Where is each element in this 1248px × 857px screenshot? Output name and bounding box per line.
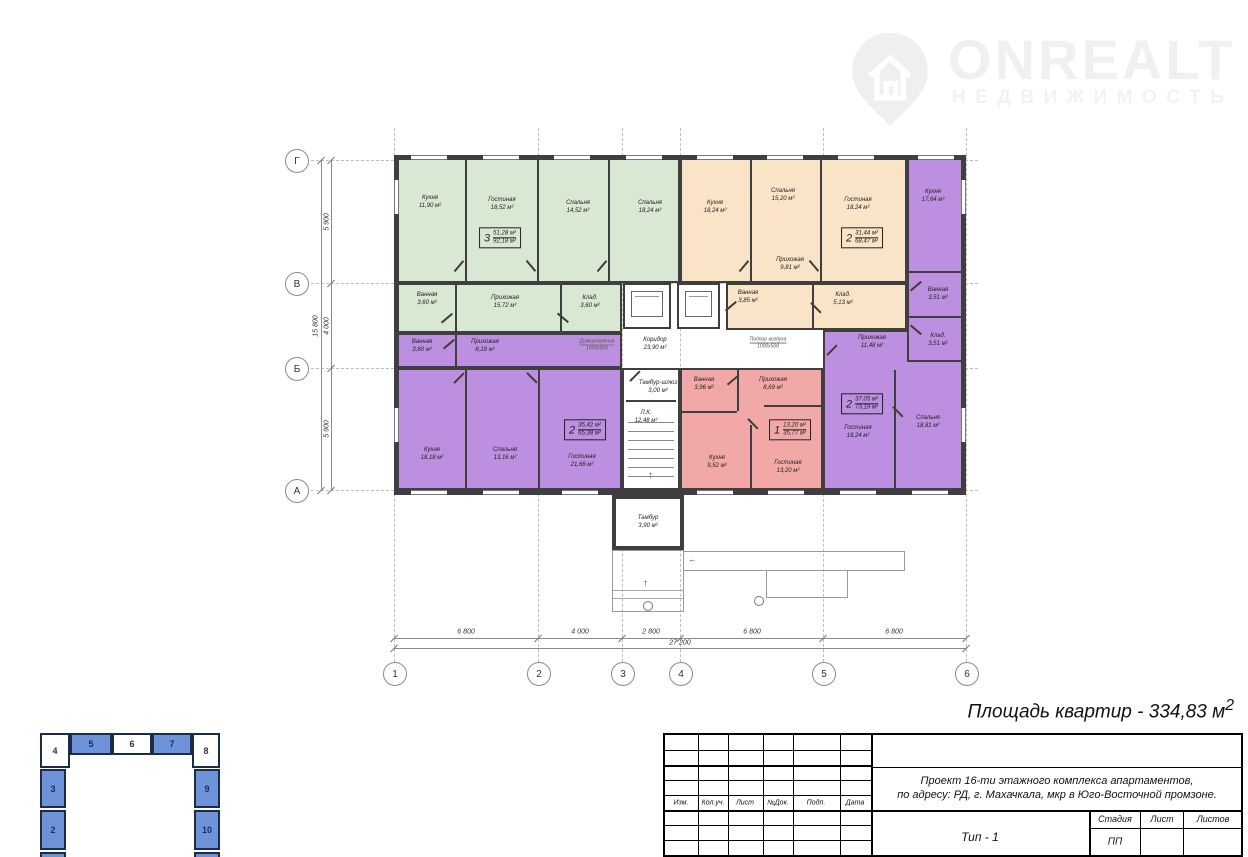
room-label: Гостиная21,66 м² bbox=[568, 454, 595, 470]
room-name: Гостиная bbox=[774, 460, 801, 468]
room-label: Кухня18,24 м² bbox=[704, 200, 727, 216]
annotation-text: Подпор воздуха bbox=[750, 337, 787, 344]
room-area: 3,00 м² bbox=[639, 388, 677, 396]
room-name: Спальня bbox=[771, 188, 795, 196]
house-pin-icon bbox=[840, 29, 940, 127]
ramp-outline bbox=[766, 571, 848, 598]
title-block-line bbox=[793, 735, 794, 857]
title-block-line bbox=[665, 795, 871, 796]
dimension-label: 4 000 bbox=[571, 629, 589, 636]
badge-rooms: 3 bbox=[484, 232, 490, 244]
dimension-label: 6 800 bbox=[743, 629, 761, 636]
room-label: Прихожая8,18 м² bbox=[471, 339, 499, 355]
dimension-label: 6 800 bbox=[457, 629, 475, 636]
title-block-header: Кол.уч. bbox=[702, 800, 725, 807]
grid-axis-bubble: 4 bbox=[669, 662, 693, 686]
ramp-left-arrow-icon: ← bbox=[688, 554, 697, 564]
room-area: 18,24 м² bbox=[638, 208, 662, 216]
plan-type-label: Тип - 1 bbox=[961, 830, 999, 844]
room-name: Кухня bbox=[421, 447, 444, 455]
room-label: Спальня13,16 м² bbox=[493, 447, 517, 463]
room-area: 12,48 м² bbox=[635, 418, 658, 426]
title-block-line bbox=[665, 780, 871, 781]
room-label: Тамбур3,90 м² bbox=[638, 515, 659, 531]
room-name: Гостиная bbox=[568, 454, 595, 462]
room-area: 13,16 м² bbox=[493, 455, 517, 463]
room-label: Ванная3,60 м² bbox=[417, 292, 437, 308]
room-area: 9,81 м² bbox=[776, 265, 804, 273]
room-name: Прихожая bbox=[759, 377, 787, 385]
badge-living-area: 51,28 м² bbox=[493, 230, 516, 238]
badge-total-area: 65,38 м² bbox=[578, 431, 601, 438]
window bbox=[768, 490, 804, 495]
room-label: Кухня11,90 м² bbox=[419, 195, 441, 211]
title-block-line bbox=[763, 735, 764, 857]
room-label: Спальня18,24 м² bbox=[638, 200, 662, 216]
stage-value: ПП bbox=[1108, 837, 1123, 848]
project-title-line1: Проект 16-ти этажного комплекса апартаме… bbox=[871, 775, 1243, 787]
grid-axis-bubble: 6 bbox=[955, 662, 979, 686]
title-block-line bbox=[665, 765, 871, 767]
window bbox=[840, 490, 876, 495]
title-block-line bbox=[1183, 810, 1184, 857]
sheet-column-header: Лист bbox=[1150, 814, 1173, 824]
room-name: Клад. bbox=[580, 295, 599, 303]
key-plan-cell[interactable]: 5 bbox=[70, 733, 112, 755]
window bbox=[697, 155, 733, 160]
dimension-label: 5 900 bbox=[324, 213, 331, 231]
page: ONREALT НЕДВИЖИМОСТЬ bbox=[0, 0, 1248, 857]
logo-subtitle: НЕДВИЖИМОСТЬ bbox=[952, 87, 1233, 109]
title-block-line bbox=[665, 750, 871, 751]
floor-plan: ↑ Кухня11,90 м² Гостиная18,52 м² Спальня… bbox=[394, 155, 966, 495]
title-block-line bbox=[873, 767, 1243, 768]
room-area: 3,60 м² bbox=[580, 303, 599, 311]
room-label: Кухня18,18 м² bbox=[421, 447, 444, 463]
window bbox=[961, 408, 966, 442]
dimension-label: 4 000 bbox=[324, 317, 331, 335]
room-label: Коридор23,90 м² bbox=[643, 337, 667, 353]
ramp-marker-circle bbox=[754, 596, 764, 606]
room-area: 21,66 м² bbox=[568, 462, 595, 470]
annotation-size: 1000х500 bbox=[757, 344, 779, 350]
window bbox=[483, 155, 519, 160]
badge-living-area: 13,20 м² bbox=[783, 422, 806, 430]
annotation-size: 1000х500 bbox=[586, 346, 608, 352]
room-area: 15,72 м² bbox=[491, 303, 519, 311]
apartment-badge: 2 37,05 м²73,19 м² bbox=[841, 393, 883, 414]
badge-total-area: 35,77 м² bbox=[783, 431, 806, 438]
room-area: 18,24 м² bbox=[844, 205, 871, 213]
room-label: Кухня17,64 м² bbox=[922, 189, 945, 205]
apartment-badge: 2 35,42 м²65,38 м² bbox=[564, 419, 606, 440]
room-area: 11,90 м² bbox=[419, 203, 441, 211]
room-name: Клад. bbox=[928, 333, 947, 341]
stage-column-header: Стадия bbox=[1098, 814, 1132, 824]
window bbox=[838, 155, 874, 160]
key-plan-cell[interactable]: 7 bbox=[152, 733, 192, 755]
room-name: Гостиная bbox=[844, 425, 871, 433]
room-label: Ванная3,51 м² bbox=[928, 287, 948, 303]
room-label: Прихожая8,69 м² bbox=[759, 377, 787, 393]
room-label: Тамбур-шлюз3,00 м² bbox=[639, 380, 677, 396]
title-block: Изм. Кол.уч. Лист №Док. Подп. Дата Проек… bbox=[663, 733, 1243, 857]
room-label: Гостиная13,20 м² bbox=[774, 460, 801, 476]
room-name: Спальня bbox=[493, 447, 517, 455]
key-plan-cell[interactable]: 10 bbox=[194, 810, 220, 850]
badge-rooms: 1 bbox=[774, 424, 780, 436]
room-name: Прихожая bbox=[491, 295, 519, 303]
smoke-exhaust-annotation: Дымоудаление1000х500 bbox=[579, 339, 614, 352]
window bbox=[411, 155, 447, 160]
room-name: Ванная bbox=[738, 290, 758, 298]
room-area: 3,51 м² bbox=[928, 295, 948, 303]
room-area: 3,96 м² bbox=[694, 385, 714, 393]
room-name: Коридор bbox=[643, 337, 667, 345]
title-block-line bbox=[665, 825, 871, 826]
dimension-label: 5 900 bbox=[324, 420, 331, 438]
room-area: 18,24 м² bbox=[844, 433, 871, 441]
room-area: 18,24 м² bbox=[704, 208, 727, 216]
room-area: 8,69 м² bbox=[759, 385, 787, 393]
window bbox=[411, 490, 447, 495]
room-area: 5,13 м² bbox=[833, 300, 852, 308]
badge-living-area: 37,05 м² bbox=[855, 396, 878, 404]
key-plan-cell[interactable]: 4 bbox=[40, 733, 70, 768]
room-name: Тамбур bbox=[638, 515, 659, 523]
room-name: Ванная bbox=[412, 339, 432, 347]
room-label: Спальня15,20 м² bbox=[771, 188, 795, 204]
dimension-total-label: 27 200 bbox=[669, 640, 690, 647]
room-label: Гостиная18,24 м² bbox=[844, 425, 871, 441]
key-plan-cell[interactable]: 9 bbox=[194, 769, 220, 808]
room-name: Кухня bbox=[704, 200, 727, 208]
room-area: 3,90 м² bbox=[638, 523, 659, 531]
key-plan-cell[interactable]: 3 bbox=[40, 769, 66, 808]
room-label: Прихожая15,72 м² bbox=[491, 295, 519, 311]
dimension-line bbox=[331, 160, 332, 490]
window bbox=[394, 180, 399, 214]
room-area: 18,81 м² bbox=[916, 423, 940, 431]
dimension-line bbox=[321, 160, 322, 490]
grid-axis-bubble: 3 bbox=[611, 662, 635, 686]
room-name: Кухня bbox=[419, 195, 441, 203]
room-label: Ванная3,60 м² bbox=[412, 339, 432, 355]
room-name: Л.К. bbox=[635, 410, 658, 418]
room-name: Клад. bbox=[833, 292, 852, 300]
total-area-sup: 2 bbox=[1225, 697, 1234, 714]
project-title-line2: по адресу: РД, г. Махачкала, мкр в Юго-В… bbox=[871, 789, 1243, 801]
room-label: Прихожая9,81 м² bbox=[776, 257, 804, 273]
grid-axis-bubble: Г bbox=[285, 149, 309, 173]
room-label: Спальня14,52 м² bbox=[566, 200, 590, 216]
total-area-text: Площадь квартир - 334,83 м bbox=[968, 701, 1226, 722]
title-block-line bbox=[728, 735, 729, 857]
title-block-line bbox=[1089, 810, 1091, 857]
window bbox=[767, 155, 803, 160]
ramp-outline bbox=[684, 551, 905, 571]
grid-axis-bubble: 2 bbox=[527, 662, 551, 686]
title-block-line bbox=[665, 840, 871, 841]
room-area: 9,52 м² bbox=[707, 463, 726, 471]
window bbox=[918, 155, 954, 160]
dimension-line bbox=[394, 648, 966, 649]
room-name: Ванная bbox=[928, 287, 948, 295]
room-name: Кухня bbox=[707, 455, 726, 463]
room-label: Кухня9,52 м² bbox=[707, 455, 726, 471]
badge-rooms: 2 bbox=[846, 398, 852, 410]
room-area: 3,85 м² bbox=[738, 298, 758, 306]
room-area: 8,18 м² bbox=[471, 347, 499, 355]
dimension-total-label: 15 800 bbox=[313, 315, 320, 336]
grid-axis-bubble: А bbox=[285, 479, 309, 503]
room-label: Клад.3,60 м² bbox=[580, 295, 599, 311]
room-name: Прихожая bbox=[471, 339, 499, 347]
key-plan-cell[interactable]: 6 bbox=[112, 733, 152, 755]
room-area: 3,60 м² bbox=[417, 300, 437, 308]
entrance-tambour: Тамбур3,90 м² bbox=[612, 495, 684, 550]
apartment-badge: 2 31,44 м²68,47 м² bbox=[841, 227, 883, 248]
room-label: Ванная3,96 м² bbox=[694, 377, 714, 393]
annotation-text: Дымоудаление bbox=[579, 339, 614, 346]
logo-brand-text: ONREALT bbox=[948, 27, 1236, 92]
room-area: 13,20 м² bbox=[774, 468, 801, 476]
badge-total-area: 92,18 м² bbox=[493, 239, 516, 246]
window bbox=[912, 490, 948, 495]
title-block-line bbox=[1140, 810, 1141, 857]
room-label: Клад.3,51 м² bbox=[928, 333, 947, 349]
room-label: Ванная3,85 м² bbox=[738, 290, 758, 306]
room-area: 14,52 м² bbox=[566, 208, 590, 216]
room-name: Кухня bbox=[922, 189, 945, 197]
window bbox=[554, 155, 590, 160]
porch-step-line bbox=[613, 590, 683, 591]
axis-grid-line bbox=[966, 128, 967, 662]
badge-living-area: 35,42 м² bbox=[578, 422, 601, 430]
title-block-line bbox=[840, 735, 841, 857]
window bbox=[483, 490, 519, 495]
badge-rooms: 2 bbox=[846, 232, 852, 244]
title-block-header: Изм. bbox=[674, 800, 689, 807]
grid-axis-bubble: 1 bbox=[383, 662, 407, 686]
title-block-line bbox=[665, 810, 1243, 812]
room-label: Спальня18,81 м² bbox=[916, 415, 940, 431]
room-area: 23,90 м² bbox=[643, 345, 667, 353]
room-label: Прихожая11,48 м² bbox=[858, 335, 886, 351]
title-block-header: Подп. bbox=[807, 800, 826, 807]
badge-rooms: 2 bbox=[569, 424, 575, 436]
room-label: Гостиная18,52 м² bbox=[488, 197, 515, 213]
window bbox=[626, 155, 662, 160]
room-name: Спальня bbox=[638, 200, 662, 208]
window bbox=[394, 408, 399, 442]
total-area-note: Площадь квартир - 334,83 м2 bbox=[968, 697, 1234, 723]
apartment-badge: 3 51,28 м²92,18 м² bbox=[479, 227, 521, 248]
key-plan-cell[interactable] bbox=[40, 852, 66, 857]
room-label: Клад.5,13 м² bbox=[833, 292, 852, 308]
onrealt-logo: ONREALT НЕДВИЖИМОСТЬ bbox=[840, 25, 1220, 125]
room-area: 17,64 м² bbox=[922, 197, 945, 205]
dimension-label: 6 800 bbox=[885, 629, 903, 636]
dimension-label: 2 800 bbox=[642, 629, 660, 636]
sheets-column-header: Листов bbox=[1197, 814, 1230, 824]
key-plan: 4 5 6 7 8 3 9 2 10 bbox=[40, 733, 220, 857]
grid-axis-bubble: В bbox=[285, 272, 309, 296]
room-label: Л.К.12,48 м² bbox=[635, 410, 658, 426]
title-block-header: Дата bbox=[846, 800, 864, 807]
porch-step-line bbox=[613, 598, 683, 599]
title-block-line bbox=[1091, 828, 1243, 829]
key-plan-cell[interactable] bbox=[194, 852, 220, 857]
key-plan-cell[interactable]: 8 bbox=[192, 733, 220, 768]
room-name: Гостиная bbox=[488, 197, 515, 205]
window bbox=[562, 490, 598, 495]
building-outline bbox=[394, 155, 966, 495]
badge-total-area: 68,47 м² bbox=[855, 239, 878, 246]
grid-axis-bubble: 5 bbox=[812, 662, 836, 686]
entrance-up-arrow-icon: ↑ bbox=[643, 578, 648, 589]
room-area: 18,18 м² bbox=[421, 455, 444, 463]
room-name: Ванная bbox=[694, 377, 714, 385]
window bbox=[961, 180, 966, 214]
air-supply-annotation: Подпор воздуха1000х500 bbox=[750, 337, 787, 350]
room-area: 11,48 м² bbox=[858, 343, 886, 351]
title-block-header: Лист bbox=[736, 800, 754, 807]
room-name: Спальня bbox=[566, 200, 590, 208]
room-name: Тамбур-шлюз bbox=[639, 380, 677, 388]
room-name: Ванная bbox=[417, 292, 437, 300]
entrance-marker-circle bbox=[643, 601, 653, 611]
room-area: 3,60 м² bbox=[412, 347, 432, 355]
key-plan-cell[interactable]: 2 bbox=[40, 810, 66, 850]
badge-living-area: 31,44 м² bbox=[855, 230, 878, 238]
room-name: Гостиная bbox=[844, 197, 871, 205]
title-block-line bbox=[698, 735, 699, 857]
badge-total-area: 73,19 м² bbox=[855, 405, 878, 412]
title-block-header: №Док. bbox=[767, 800, 789, 807]
room-label: Гостиная18,24 м² bbox=[844, 197, 871, 213]
room-name: Прихожая bbox=[858, 335, 886, 343]
room-area: 15,20 м² bbox=[771, 196, 795, 204]
grid-axis-bubble: Б bbox=[285, 357, 309, 381]
window bbox=[697, 490, 733, 495]
apartment-badge: 1 13,20 м²35,77 м² bbox=[769, 419, 811, 440]
room-area: 18,52 м² bbox=[488, 205, 515, 213]
room-name: Прихожая bbox=[776, 257, 804, 265]
room-area: 3,51 м² bbox=[928, 341, 947, 349]
room-name: Спальня bbox=[916, 415, 940, 423]
